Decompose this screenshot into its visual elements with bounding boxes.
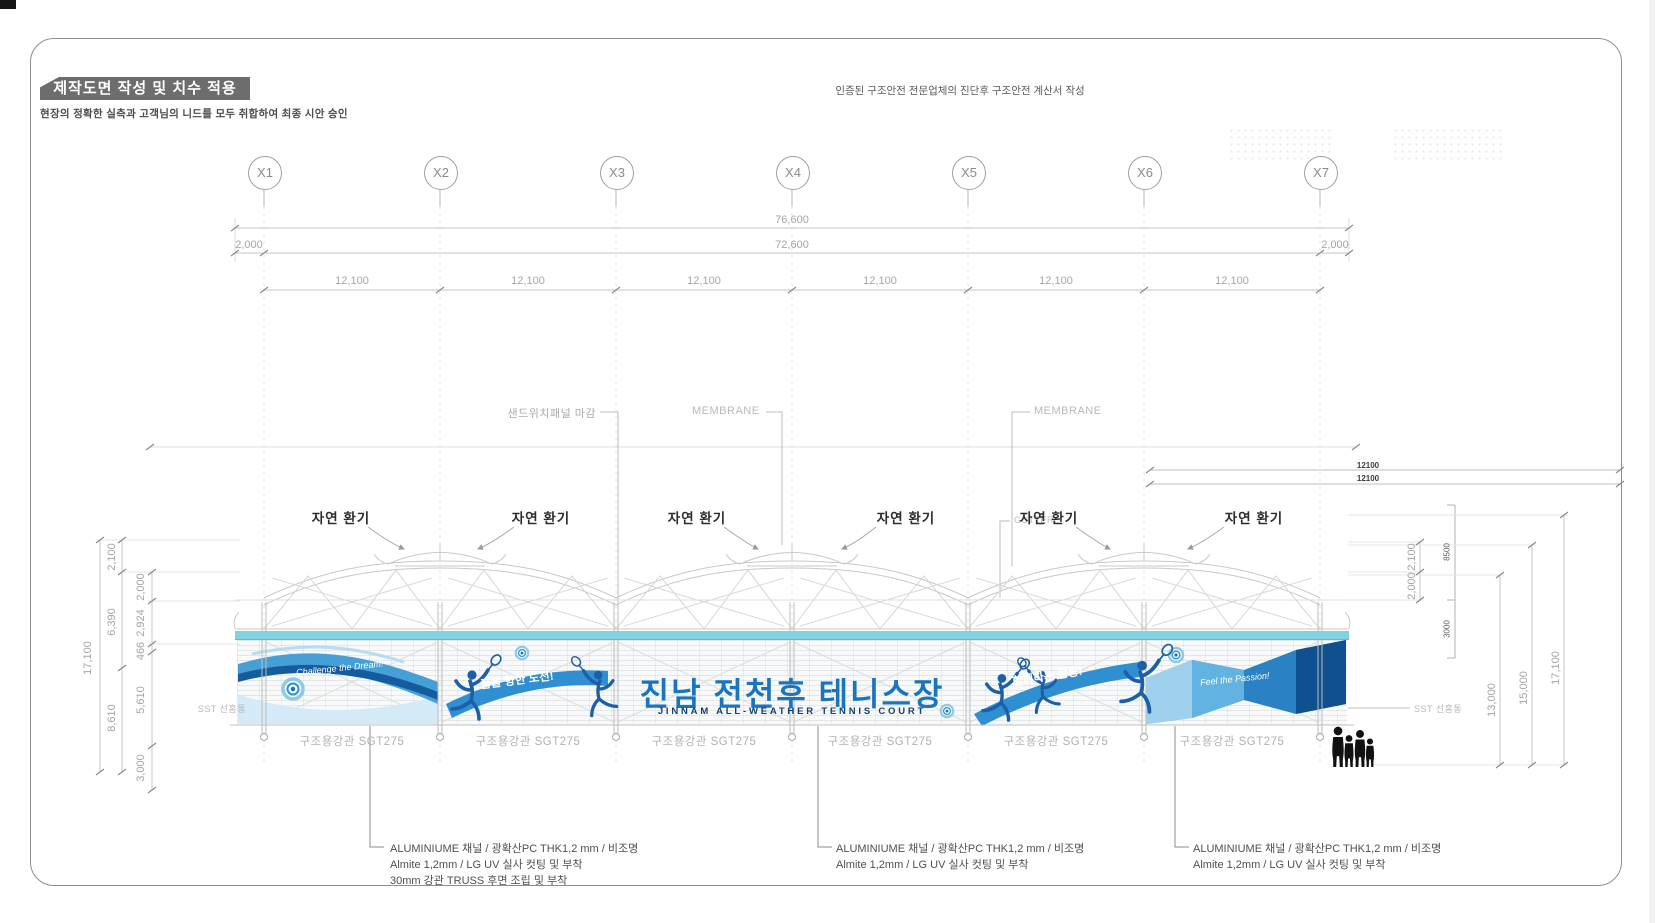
dim-bay-3: 12,100 <box>687 275 721 287</box>
dim-module-a: 12100 <box>1357 461 1379 470</box>
grid-bubble-x4: X4 <box>776 156 810 190</box>
column-label-3: 구조용강관 SGT275 <box>629 733 779 749</box>
annotation-line: ALUMINIUME 채널 / 광확산PC THK1,2 mm / 비조명 <box>390 841 638 857</box>
column-label-4: 구조용강관 SGT275 <box>805 733 955 749</box>
dim-left-inner-2: 2,924 <box>135 609 147 637</box>
dim-left-offset: 2,000 <box>235 239 263 251</box>
column-label-1: 구조용강관 SGT275 <box>277 733 427 749</box>
dim-left-outer-1: 2,100 <box>106 543 118 571</box>
dim-roof-upper: 8500 <box>1443 543 1452 561</box>
dim-right-13000: 13,000 <box>1486 683 1498 717</box>
dim-left-inner-4: 5,610 <box>135 686 147 714</box>
dim-bay-4: 12,100 <box>863 275 897 287</box>
callout-sst-right: SST 선홈통 <box>1414 702 1462 715</box>
callout-membrane-right: MEMBRANE <box>1034 405 1102 417</box>
annotation-line: 30mm 강관 TRUSS 후면 조립 및 부착 <box>390 873 638 889</box>
vent-label-5: 자연 환기 <box>1004 507 1094 527</box>
callout-sst-left: SST 선홈통 <box>160 702 246 715</box>
annotation-block-middle: ALUMINIUME 채널 / 광확산PC THK1,2 mm / 비조명 Al… <box>836 841 1084 873</box>
drawing-sheet: 제작도면 작성 및 치수 적용 현장의 정확한 실측과 고객님의 니드를 모두 … <box>0 0 1655 923</box>
callout-sandwich-panel: 샌드위치패널 마감 <box>466 405 596 421</box>
column-label-6: 구조용강관 SGT275 <box>1157 733 1307 749</box>
dim-right-offset: 2,000 <box>1321 239 1349 251</box>
dim-left-outer-2: 6,390 <box>106 608 118 636</box>
annotation-line: Almite 1,2mm / LG UV 실사 컷팅 및 부착 <box>390 857 638 873</box>
elevation-linework <box>0 0 1655 923</box>
top-note: 인증된 구조안전 전문업체의 진단후 구조안전 계산서 작성 <box>820 83 1100 98</box>
page-subtitle: 현장의 정확한 실측과 고객님의 니드를 모두 취합하여 최종 시안 승인 <box>40 106 348 121</box>
annotation-block-left: ALUMINIUME 채널 / 광확산PC THK1,2 mm / 비조명 Al… <box>390 841 638 889</box>
grid-bubble-x7: X7 <box>1304 156 1338 190</box>
dim-right-top-2: 2,000 <box>1406 572 1418 600</box>
dim-left-inner-5: 3,000 <box>135 754 147 782</box>
grid-bubble-x6: X6 <box>1128 156 1162 190</box>
dim-left-overall: 17,100 <box>82 641 94 675</box>
dim-overall: 76,600 <box>775 214 809 226</box>
vent-label-4: 자연 환기 <box>861 507 951 527</box>
vent-label-3: 자연 환기 <box>652 507 742 527</box>
dim-right-15000: 15,000 <box>1518 671 1530 705</box>
teal-band <box>235 631 1349 639</box>
callout-membrane-left: MEMBRANE <box>692 405 760 417</box>
page-title: 제작도면 작성 및 치수 적용 <box>40 77 250 100</box>
grid-bubble-x2: X2 <box>424 156 458 190</box>
grid-bubble-x3: X3 <box>600 156 634 190</box>
scale-figures <box>1332 727 1374 767</box>
leader-lines <box>250 412 1410 708</box>
dim-right-top-1: 2,100 <box>1406 543 1418 571</box>
annotation-line: Almite 1,2mm / LG UV 실사 컷팅 및 부착 <box>1193 857 1441 873</box>
column-label-2: 구조용강관 SGT275 <box>453 733 603 749</box>
dim-inner: 72,600 <box>775 239 809 251</box>
vent-label-6: 자연 환기 <box>1209 507 1299 527</box>
dim-roof-lower: 3000 <box>1443 620 1452 638</box>
dim-left-inner-3: 466 <box>135 642 147 660</box>
dim-bay-6: 12,100 <box>1215 275 1249 287</box>
sign-subtitle: JINNAM ALL-WEATHER TENNIS COURT <box>616 706 968 717</box>
grid-bubble-x5: X5 <box>952 156 986 190</box>
annotation-block-right: ALUMINIUME 채널 / 광확산PC THK1,2 mm / 비조명 Al… <box>1193 841 1441 873</box>
dim-module-b: 12100 <box>1357 474 1379 483</box>
dim-left-inner-1: 2,000 <box>135 573 147 601</box>
dim-left-outer-3: 8,610 <box>106 704 118 732</box>
column-label-5: 구조용강관 SGT275 <box>981 733 1131 749</box>
dim-bay-5: 12,100 <box>1039 275 1073 287</box>
dim-bay-1: 12,100 <box>335 275 369 287</box>
annotation-line: Almite 1,2mm / LG UV 실사 컷팅 및 부착 <box>836 857 1084 873</box>
dim-right-17100: 17,100 <box>1550 651 1562 685</box>
annotation-line: ALUMINIUME 채널 / 광확산PC THK1,2 mm / 비조명 <box>1193 841 1441 857</box>
grid-bubble-x1: X1 <box>248 156 282 190</box>
annotation-line: ALUMINIUME 채널 / 광확산PC THK1,2 mm / 비조명 <box>836 841 1084 857</box>
vent-label-1: 자연 환기 <box>296 507 386 527</box>
vent-label-2: 자연 환기 <box>496 507 586 527</box>
dim-bay-2: 12,100 <box>511 275 545 287</box>
